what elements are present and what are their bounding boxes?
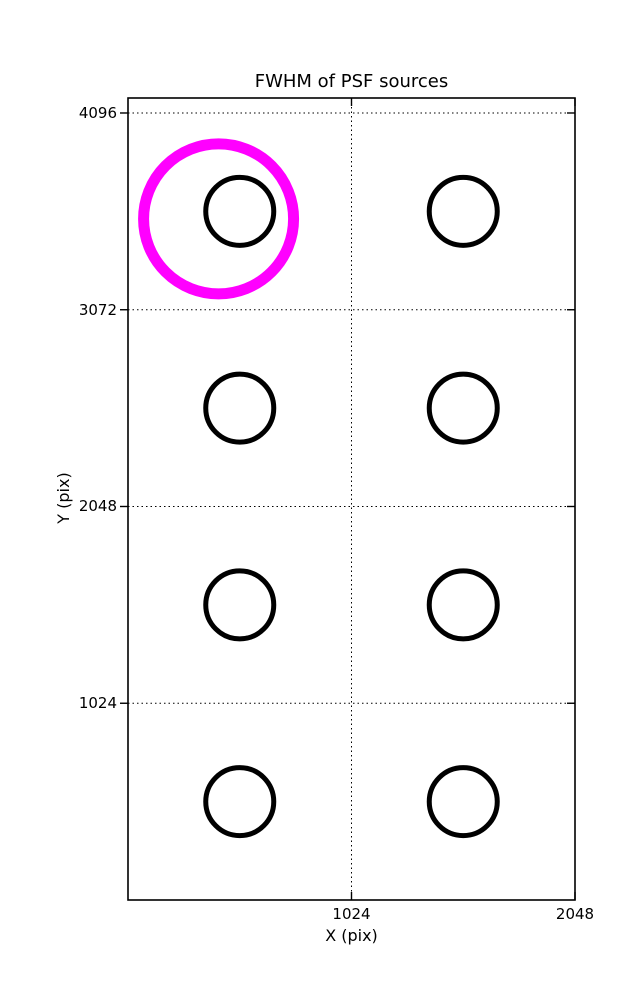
x-axis-label: X (pix) bbox=[128, 926, 575, 946]
psf-source-marker bbox=[429, 177, 497, 245]
x-tick-label-1024: 1024 bbox=[307, 904, 397, 924]
psf-source-marker bbox=[206, 374, 274, 442]
psf-source-marker bbox=[206, 177, 274, 245]
y-tick-label-2048: 2048 bbox=[27, 496, 117, 516]
psf-source-marker bbox=[206, 571, 274, 639]
fwhm-psf-figure: FWHM of PSF sources X (pix) Y (pix) 1024… bbox=[0, 0, 637, 1000]
psf-source-marker bbox=[429, 571, 497, 639]
x-tick-label-2048: 2048 bbox=[530, 904, 620, 924]
y-tick-label-1024: 1024 bbox=[27, 693, 117, 713]
psf-source-marker bbox=[429, 374, 497, 442]
chart-title: FWHM of PSF sources bbox=[128, 71, 575, 93]
y-tick-label-3072: 3072 bbox=[27, 300, 117, 320]
y-tick-label-4096: 4096 bbox=[27, 103, 117, 123]
psf-source-marker bbox=[206, 768, 274, 836]
psf-source-marker bbox=[429, 768, 497, 836]
